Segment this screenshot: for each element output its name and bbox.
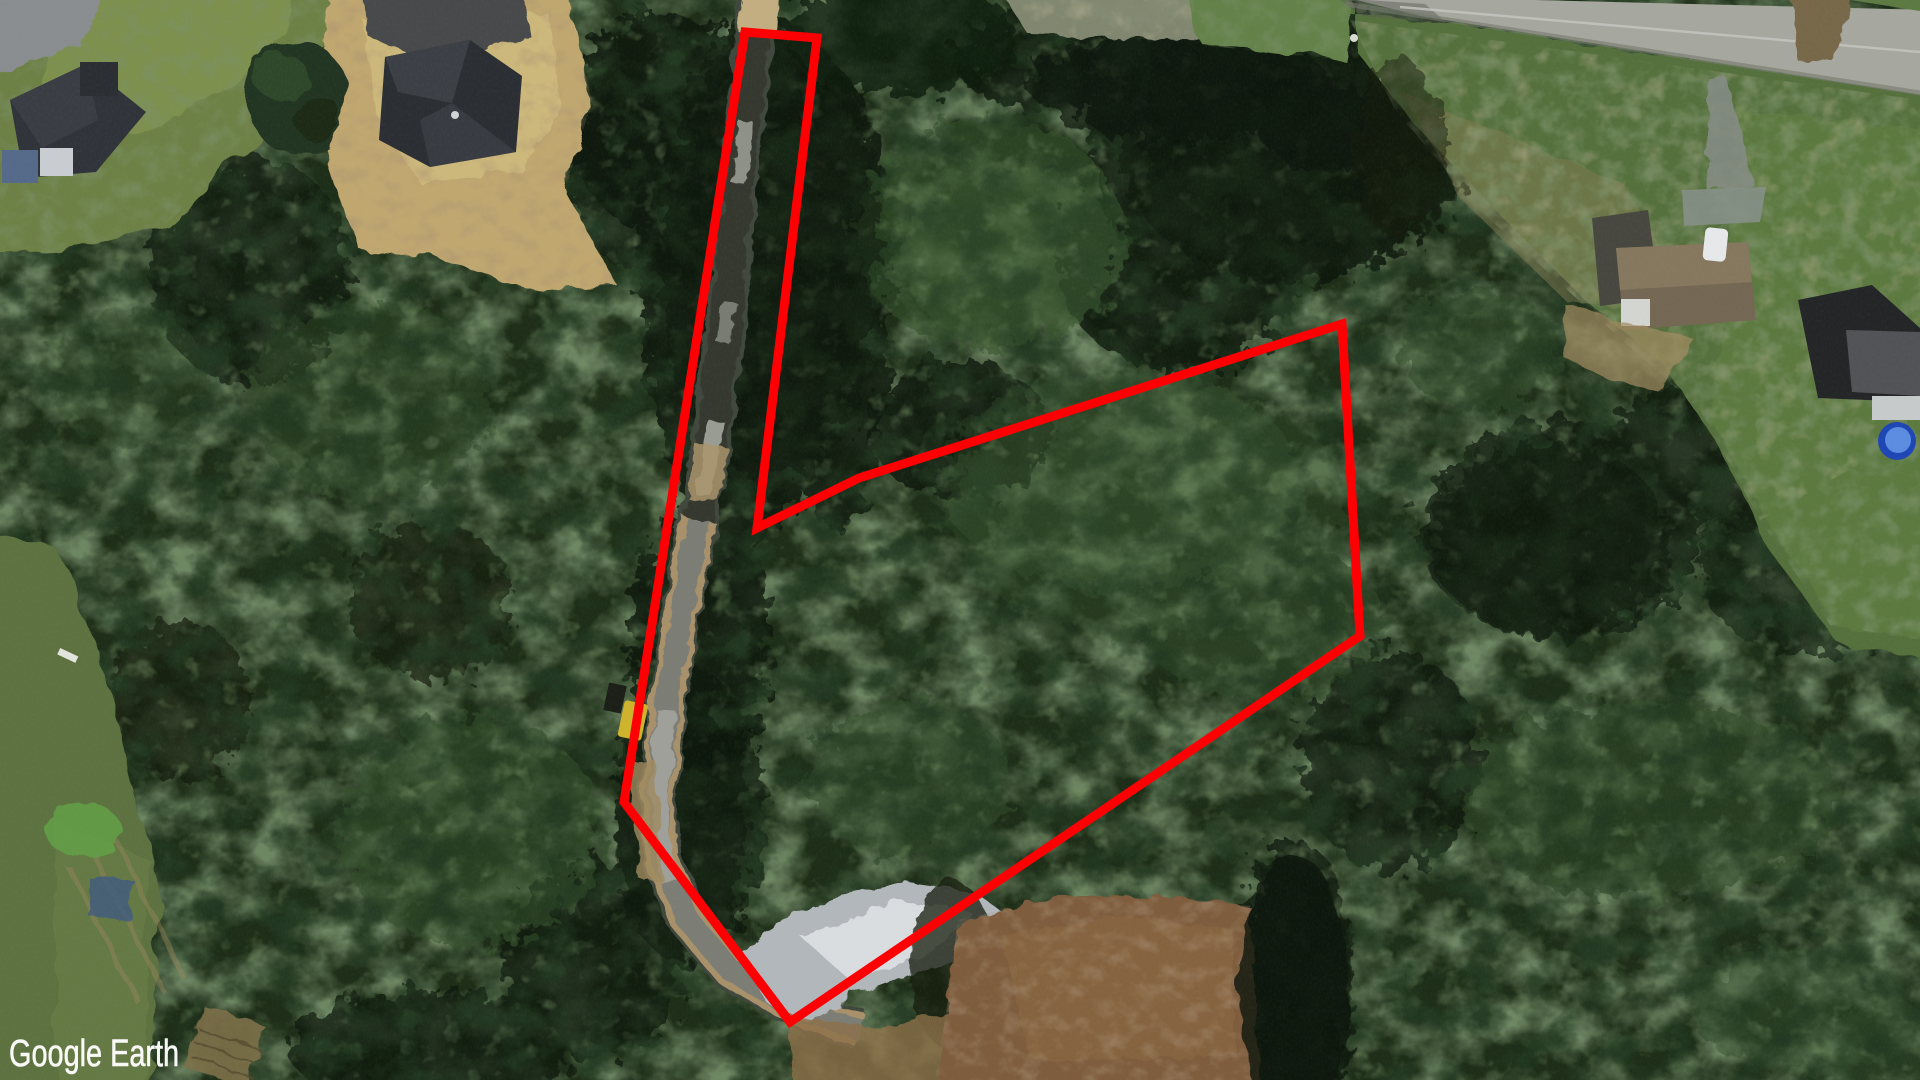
svg-text:Google Earth: Google Earth <box>9 1032 179 1075</box>
